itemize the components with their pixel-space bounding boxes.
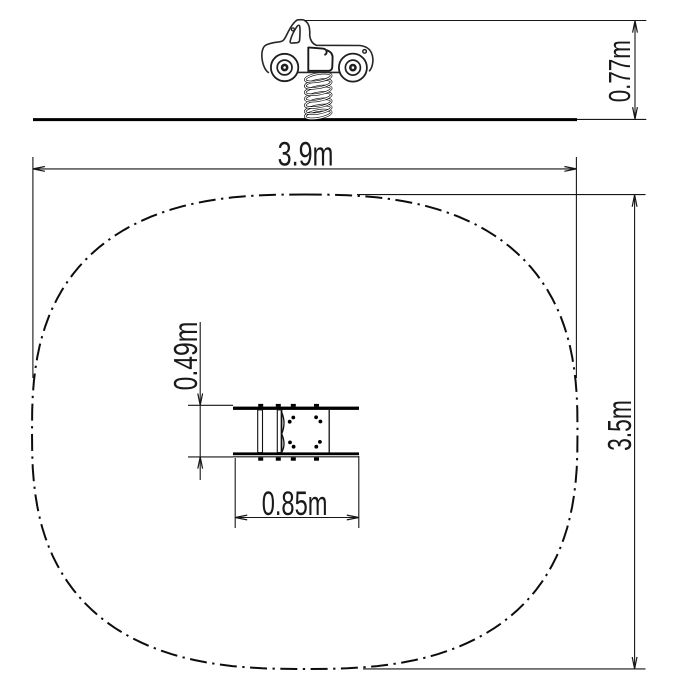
- svg-text:3.5m: 3.5m: [602, 400, 639, 451]
- svg-text:0.49m: 0.49m: [169, 322, 205, 391]
- svg-text:3.9m: 3.9m: [278, 136, 334, 174]
- svg-text:0.85m: 0.85m: [262, 485, 328, 523]
- svg-text:0.77m: 0.77m: [602, 40, 636, 102]
